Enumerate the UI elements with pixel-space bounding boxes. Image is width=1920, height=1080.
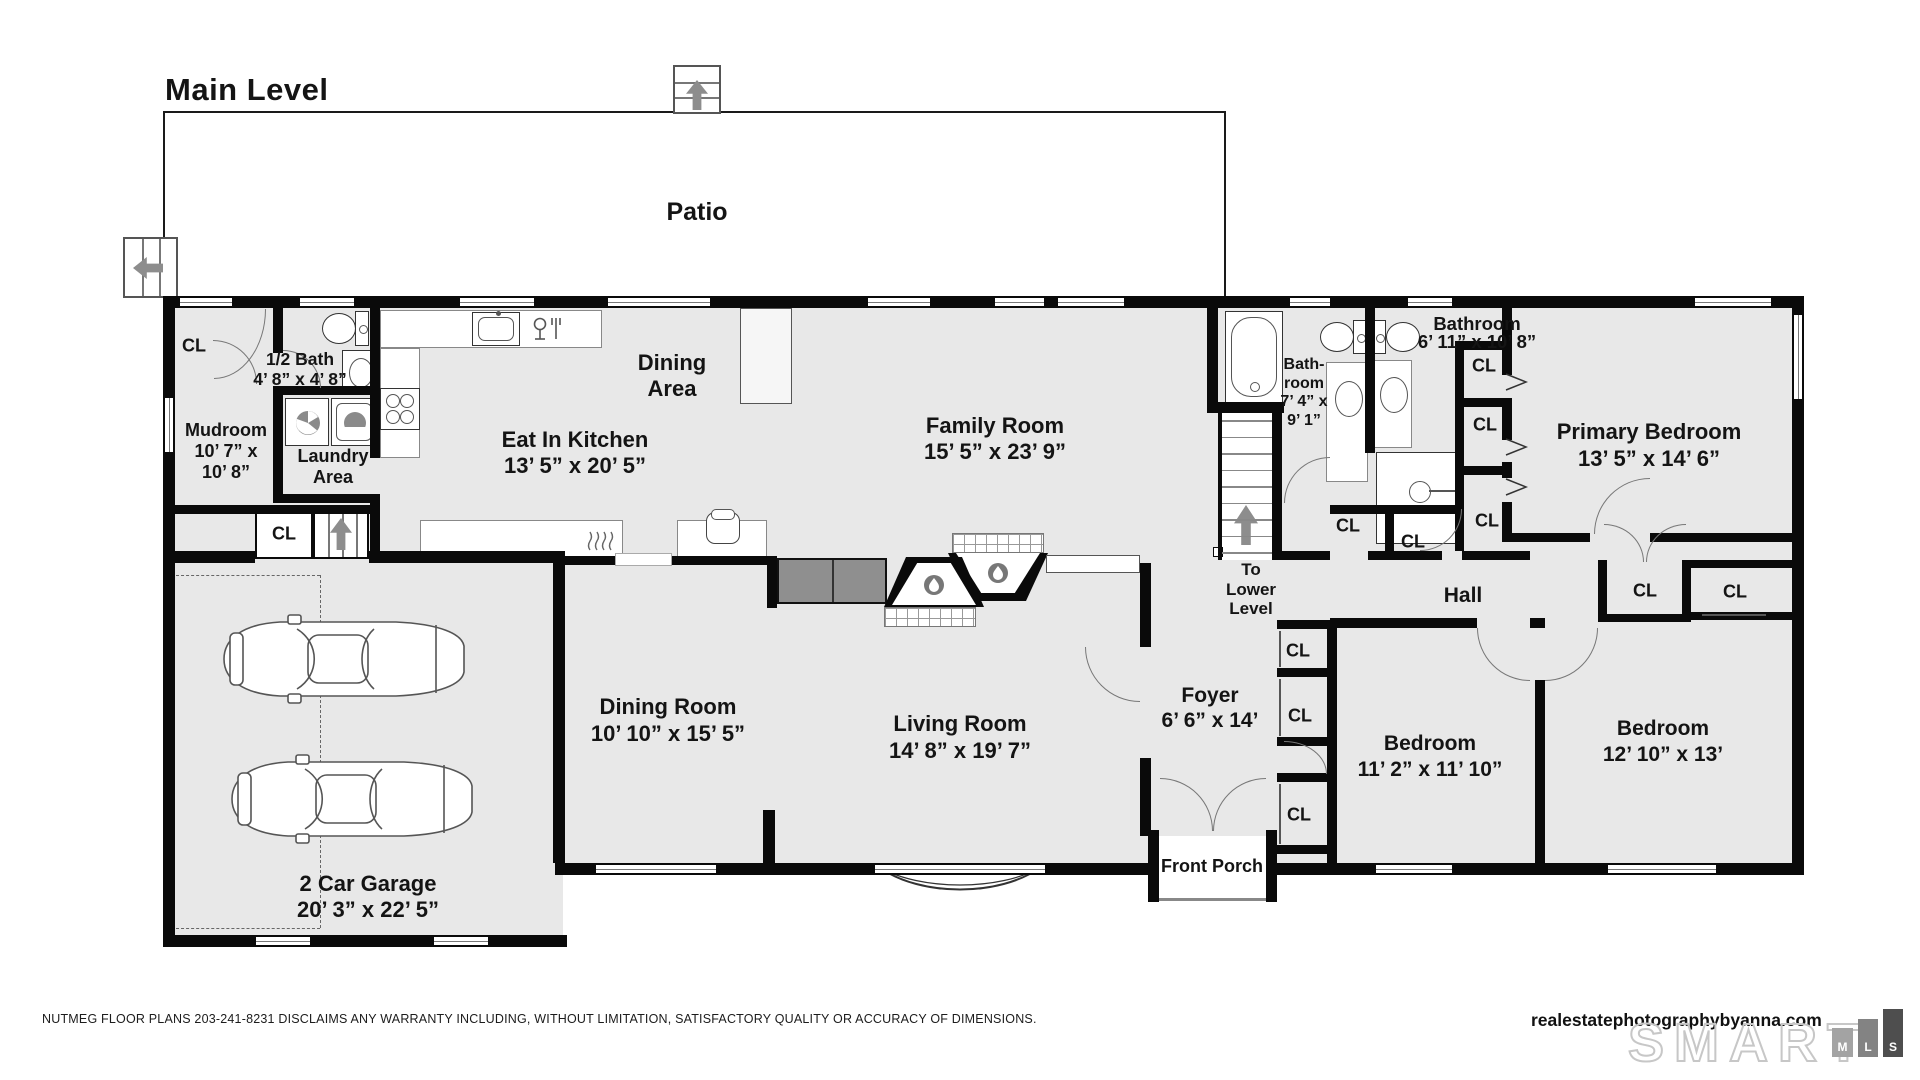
garage-dashed-line [176, 928, 320, 929]
closet-door-line [1279, 631, 1281, 667]
stair-tread [1222, 552, 1272, 554]
bifold-door-icon [1504, 477, 1530, 497]
room-label-line: Area [297, 467, 368, 488]
half-wall-ledge [1046, 555, 1140, 573]
room-label-line: 10’ 7” x [185, 441, 267, 462]
flame-icon [987, 562, 1009, 584]
room-label-line: Laundry [297, 446, 368, 467]
window [163, 398, 175, 452]
wall [163, 551, 255, 563]
closet-label: CL [1288, 706, 1312, 727]
closet-door-line [1702, 614, 1766, 616]
wall [763, 810, 775, 863]
window [256, 935, 310, 947]
pantry-cabinet [740, 308, 792, 404]
wall [1598, 614, 1691, 622]
room-label-primary-bedroom: Primary Bedroom13’ 5” x 14’ 6” [1557, 418, 1742, 472]
window [995, 296, 1044, 308]
window [1695, 296, 1771, 308]
wall [369, 551, 565, 563]
closet-label: CL [1287, 805, 1311, 826]
room-label-garage: 2 Car Garage20’ 3” x 22’ 5” [297, 871, 439, 923]
room-label-dining-area: DiningArea [638, 350, 706, 402]
closet-label: CL [182, 336, 206, 357]
window [596, 863, 716, 875]
stair-tread [1222, 437, 1272, 439]
room-label-line: 10’ 10” x 15’ 5” [591, 720, 745, 747]
closet-label: CL [1472, 356, 1496, 377]
room-label-bath-1: Bath-room7’ 4” x9’ 1” [1280, 356, 1327, 430]
closet-door-line [1279, 679, 1281, 736]
wall [767, 556, 777, 608]
room-label-line: Dining Room [591, 693, 745, 720]
fireplace-hearth-tiles [884, 607, 976, 627]
wall [553, 556, 565, 863]
wall [1502, 502, 1512, 542]
room-label-line: 13’ 5” x 14’ 6” [1557, 445, 1742, 472]
kitchen-doorway [615, 553, 672, 566]
wall [273, 395, 283, 503]
prep-sink [706, 512, 740, 544]
room-label-line: 9’ 1” [1280, 412, 1327, 431]
room-label-line: 13’ 5” x 20’ 5” [502, 453, 649, 479]
stair-tread [1222, 503, 1272, 505]
window [868, 296, 930, 308]
room-label-bath-2: Bathroom6’ 11” x 10’ 8” [1418, 315, 1536, 350]
wall [1148, 830, 1159, 902]
room-label-mudroom: Mudroom10’ 7” x10’ 8” [185, 420, 267, 483]
room-label-laundry: LaundryArea [297, 446, 368, 487]
room-label-hall: Hall [1444, 585, 1483, 607]
wall [1502, 462, 1512, 478]
toilet-tank [355, 311, 369, 346]
wall [565, 556, 615, 565]
range-vent-icon [586, 530, 616, 552]
closet-door-line [1279, 784, 1281, 844]
window [1792, 315, 1804, 399]
room-label-line: 14’ 8” x 19’ 7” [889, 737, 1031, 764]
room-label-line: 20’ 3” x 22’ 5” [297, 897, 439, 923]
wall [1207, 308, 1218, 408]
room-label-line: Family Room [924, 413, 1066, 439]
room-label-line: 2 Car Garage [297, 871, 439, 897]
window [180, 296, 232, 308]
room-label-family-room: Family Room15’ 5” x 23’ 9” [924, 413, 1066, 465]
room-label-front-porch: Front Porch [1161, 856, 1263, 876]
bifold-door-icon [1504, 372, 1530, 392]
room-label-line: 6’ 6” x 14’ [1162, 708, 1259, 733]
washer [285, 398, 329, 446]
stair-tread [1222, 470, 1272, 472]
bifold-door-icon [1504, 437, 1530, 457]
room-label-line: 10’ 8” [185, 462, 267, 483]
room-label-line: Bathroom [1418, 315, 1536, 333]
window [1290, 296, 1330, 308]
wall [370, 308, 380, 458]
room-label-line: 6’ 11” x 10’ 8” [1418, 333, 1536, 351]
stair-tread [1222, 536, 1272, 538]
wall [1691, 560, 1792, 568]
room-label-line: Bedroom [1603, 716, 1723, 742]
window [434, 935, 488, 947]
stair-tread [1222, 486, 1272, 488]
wall [1512, 533, 1590, 542]
wall [1682, 560, 1691, 622]
window [1408, 296, 1452, 308]
dishwasher-icon [530, 316, 566, 344]
room-label-line: To [1226, 560, 1276, 580]
wall [1282, 551, 1330, 560]
room-label-line: 15’ 5” x 23’ 9” [924, 439, 1066, 465]
room-label-line: 1/2 Bath [253, 349, 346, 369]
closet-label: CL [1633, 581, 1657, 602]
wall [672, 556, 777, 565]
room-label-line: Level [1226, 599, 1276, 619]
room-label-line: Area [638, 376, 706, 402]
wall [1140, 563, 1151, 647]
wall [1140, 758, 1151, 836]
room-label-line: 7’ 4” x [1280, 393, 1327, 412]
window [1608, 863, 1716, 875]
stair-tread [1222, 519, 1272, 521]
room-label-line: Living Room [889, 710, 1031, 737]
bathtub [1225, 311, 1283, 403]
closet-label: CL [1473, 415, 1497, 436]
builtin-cabinet [777, 558, 887, 604]
room-label-line: Mudroom [185, 420, 267, 441]
stair-tread [1222, 453, 1272, 455]
wall [1330, 618, 1477, 628]
closet-label: CL [1336, 516, 1360, 537]
room-label-line: Dining [638, 350, 706, 376]
room-label-line: room [1280, 375, 1327, 394]
porch-edge [1148, 898, 1277, 901]
room-label-line: Primary Bedroom [1557, 418, 1742, 445]
room-label-bedroom-2: Bedroom12’ 10” x 13’ [1603, 716, 1723, 768]
toilet-bowl [1386, 322, 1420, 352]
room-label-line: Hall [1444, 585, 1483, 607]
fireplace-hearth-tiles [952, 533, 1044, 553]
stair-tread [1222, 420, 1272, 422]
closet-label: CL [1401, 532, 1425, 553]
window [608, 296, 710, 308]
wall [273, 308, 283, 353]
closet-label: CL [1475, 511, 1499, 532]
floor-plan-page: Main Level Patio [0, 0, 1920, 1080]
wall [1365, 308, 1375, 453]
room-label-half-bath: 1/2 Bath4’ 8” x 4’ 8” [253, 349, 346, 389]
page-title: Main Level [165, 72, 329, 108]
vanity [1372, 360, 1412, 448]
room-label-dining-room: Dining Room10’ 10” x 15’ 5” [591, 693, 745, 747]
room-label-line: Bath- [1280, 356, 1327, 375]
wall [163, 935, 567, 947]
wall [1535, 680, 1545, 873]
wall [273, 494, 380, 503]
wall [1327, 620, 1337, 863]
room-label-stairs-lower: ToLowerLevel [1226, 560, 1276, 619]
window [300, 296, 354, 308]
mls-letter-l: L [1858, 1019, 1878, 1057]
wall [1530, 618, 1545, 628]
toilet-bowl [1320, 322, 1354, 352]
wall [163, 296, 1804, 308]
closet-label: CL [1286, 641, 1310, 662]
room-label-foyer: Foyer6’ 6” x 14’ [1162, 683, 1259, 733]
room-label-line: Lower [1226, 580, 1276, 600]
room-label-line: 4’ 8” x 4’ 8” [253, 369, 346, 389]
wall [1502, 400, 1512, 440]
room-label-line: Front Porch [1161, 856, 1263, 876]
window [875, 863, 1045, 875]
room-label-line: Bedroom [1358, 731, 1503, 757]
patio-label: Patio [666, 198, 727, 227]
car-top-view [200, 606, 480, 714]
window [1058, 296, 1124, 308]
wall [1385, 505, 1394, 551]
room-label-line: 11’ 2” x 11’ 10” [1358, 757, 1503, 783]
wall [163, 296, 175, 947]
window [1376, 863, 1452, 875]
room-label-line: Eat In Kitchen [502, 427, 649, 453]
kitchen-sink [472, 312, 520, 346]
room-label-bedroom-1: Bedroom11’ 2” x 11’ 10” [1358, 731, 1503, 783]
garage-dashed-line [176, 575, 320, 576]
toilet-bowl [322, 313, 356, 344]
stove [380, 388, 420, 430]
flame-icon [923, 574, 945, 596]
room-label-line: 12’ 10” x 13’ [1603, 742, 1723, 768]
room-label-line: Foyer [1162, 683, 1259, 708]
room-label-living-room: Living Room14’ 8” x 19’ 7” [889, 710, 1031, 764]
room-label-kitchen: Eat In Kitchen13’ 5” x 20’ 5” [502, 427, 649, 479]
car-top-view [208, 746, 488, 854]
mls-letter-s: S [1883, 1009, 1903, 1057]
wall [370, 494, 380, 563]
mls-letter-m: M [1832, 1028, 1853, 1057]
wall [1266, 830, 1277, 902]
disclaimer-text: NUTMEG FLOOR PLANS 203-241-8231 DISCLAIM… [42, 1012, 1037, 1026]
wall [163, 505, 380, 514]
wall [1462, 551, 1530, 560]
wall [1598, 560, 1607, 622]
vanity [1326, 362, 1368, 482]
window [460, 296, 534, 308]
closet-label: CL [1723, 582, 1747, 603]
closet-label: CL [272, 524, 296, 545]
